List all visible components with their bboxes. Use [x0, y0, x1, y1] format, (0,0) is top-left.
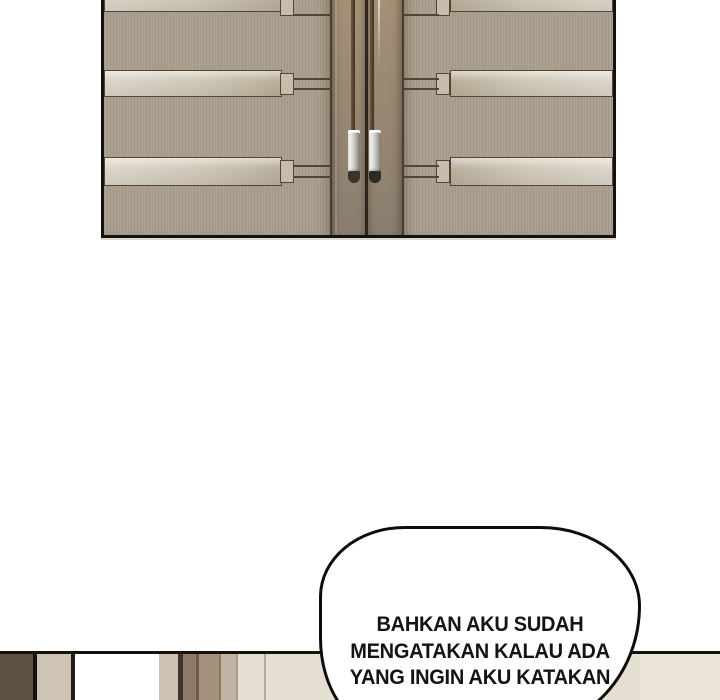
- left-handle-grip: [348, 130, 360, 172]
- left-handle-rod: [351, 0, 355, 132]
- hallway-stripe: [37, 654, 71, 700]
- door-groove-line: [403, 176, 439, 178]
- panel-doors: [101, 0, 616, 238]
- speech-line: YANG INGIN AKU KATAKAN: [333, 664, 627, 691]
- door-inlay-strip: [104, 0, 282, 12]
- speech-line: BAHKAN AKU SUDAH: [333, 611, 627, 638]
- door-groove-line: [403, 78, 439, 80]
- right-door-field: [404, 0, 613, 235]
- door-groove-line: [403, 165, 439, 167]
- door-inlay-tab: [436, 73, 450, 95]
- door-inlay-strip: [450, 0, 613, 12]
- hallway-stripe: [183, 654, 196, 700]
- door-inlay-tab: [280, 0, 294, 16]
- door-groove-line: [293, 78, 331, 80]
- hallway-stripe: [238, 654, 264, 700]
- door-inlay-strip: [450, 157, 613, 186]
- left-door-field: [104, 0, 330, 235]
- door-groove-line: [293, 14, 331, 16]
- speech-line: MENGATAKAN KALAU ADA: [333, 638, 627, 665]
- hallway-stripe: [221, 654, 236, 700]
- speech-bubble: BAHKAN AKU SUDAH MENGATAKAN KALAU ADA YA…: [319, 526, 641, 700]
- comic-page: BAHKAN AKU SUDAH MENGATAKAN KALAU ADA YA…: [0, 0, 720, 700]
- door-inlay-strip: [450, 70, 613, 97]
- speech-text: BAHKAN AKU SUDAH MENGATAKAN KALAU ADA YA…: [333, 611, 627, 691]
- stile-highlight-left: [335, 0, 337, 235]
- right-handle-rod: [370, 0, 374, 132]
- hallway-stripe: [159, 654, 178, 700]
- door-inlay-strip: [104, 157, 282, 186]
- door-inlay-strip: [104, 70, 282, 97]
- hallway-stripe: [0, 654, 33, 700]
- door-inlay-tab: [436, 160, 450, 183]
- door-inlay-tab: [280, 73, 294, 95]
- left-handle-cap: [348, 171, 361, 183]
- hallway-stripe: [75, 654, 159, 700]
- door-groove-line: [293, 165, 331, 167]
- hallway-stripe: [640, 654, 720, 700]
- door-seam: [365, 0, 368, 235]
- hallway-stripe: [199, 654, 219, 700]
- right-handle-cap: [369, 171, 382, 183]
- door-groove-line: [403, 14, 439, 16]
- door-groove-line: [293, 176, 331, 178]
- right-handle-grip: [369, 130, 381, 172]
- door-groove-line: [293, 88, 331, 90]
- door-groove-line: [403, 88, 439, 90]
- door-inlay-tab: [280, 160, 294, 183]
- stile-highlight: [378, 0, 380, 68]
